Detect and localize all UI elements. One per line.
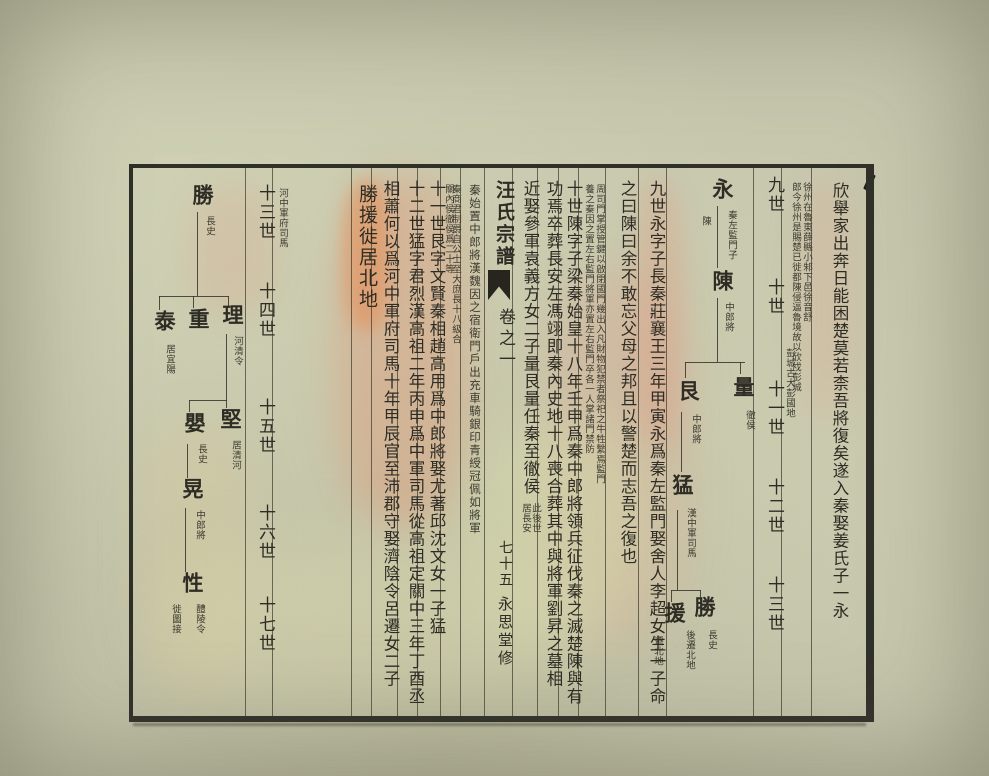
- tree-connector: [197, 212, 198, 296]
- generation-column-rule: [245, 168, 246, 716]
- publisher-hall: 永思堂修: [490, 596, 512, 668]
- text-column-gen9b: 之曰陳曰余不敢忘父母之邦且以警楚而志吾之復也: [613, 180, 635, 565]
- tree-name-ying: 嬰: [181, 412, 205, 433]
- fishtail-mark: [488, 270, 510, 300]
- tree-name-sheng: 勝: [691, 596, 715, 617]
- text-column-gen9: 九世永字子長秦莊襄王三年甲寅永爲秦左監門娶舍人李超女生一子命: [642, 180, 664, 705]
- text-column-gen12: 十二世猛字君烈漢高祖二年丙申爲中軍司馬從高祖定關中三年丁酉丞: [401, 180, 423, 705]
- tree-note-tai: 居宜陽: [163, 344, 174, 374]
- tree-note-yong-l: 陳: [699, 216, 710, 226]
- tree-name-jian: 堅: [217, 408, 241, 429]
- note-sima: 河中軍府司馬: [275, 188, 287, 248]
- tree-note-sheng-l: 後遷北地: [683, 630, 694, 670]
- column-rule: [753, 168, 754, 716]
- tree-note-huang: 中郎將: [193, 510, 204, 540]
- tree-connector: [189, 400, 190, 412]
- text-column-highlighted: 勝援徙居北地: [354, 184, 376, 310]
- tree-bracket: [685, 362, 745, 363]
- tree-note-li: 河清令: [231, 336, 242, 366]
- text-column-gen11: 十一世艮字文賢秦相趙高用爲中郎將娶尤著邱沈文女一子猛: [422, 180, 444, 635]
- note-residence-2: 居長安: [518, 503, 530, 533]
- note-zhonglangjiang: 秦始置中郎將漢魏因之宿衛門戶出充車騎銀印青綬冠佩如將軍: [465, 184, 480, 535]
- tree-note-liang: 徹侯: [743, 410, 754, 430]
- generation-label-13b: 十三世: [249, 184, 273, 241]
- tree-connector: [681, 412, 682, 472]
- tree-connector: [159, 296, 160, 310]
- tree-connector: [717, 298, 718, 362]
- tree-connector: [226, 400, 227, 408]
- tree-connector: [193, 296, 194, 308]
- tree-name-gen: 艮: [675, 380, 699, 401]
- tree-note-xing-l: 徙圖接: [169, 604, 180, 634]
- tree-connector: [226, 334, 227, 400]
- tree-note-chen: 中郎將: [722, 302, 733, 332]
- tree-connector: [717, 206, 718, 268]
- book-page-frame: 欣舉家出奔日能困楚莫若柰吾將復矣遂入秦娶姜氏子一永 徐州在魯東薛縣小邾下邑徐音舒…: [129, 164, 874, 722]
- tree-connector: [740, 362, 741, 374]
- tree-name-liang: 量: [730, 376, 754, 397]
- column-rule: [638, 168, 639, 716]
- tree-connector: [187, 444, 188, 478]
- tree-name-tai: 泰: [151, 310, 175, 331]
- column-rule: [666, 168, 667, 716]
- scanned-book-photo: { "book": { "title": "汪氏宗譜", "volume": "…: [0, 0, 989, 776]
- text-column-gen12b: 相蕭何以爲河中軍府司馬十年甲辰官至沛郡守娶濟陰令呂遷女二子: [376, 180, 398, 688]
- tree-name-huang: 晃: [179, 478, 203, 499]
- tree-note-sheng2: 長史: [203, 216, 214, 236]
- tree-bracket: [189, 400, 227, 401]
- tree-note-ying: 長史: [195, 444, 206, 464]
- generation-label-12: 十二世: [758, 478, 782, 535]
- tree-connector: [685, 362, 686, 378]
- tree-connector: [671, 590, 672, 602]
- tree-note-sheng-r: 長史: [705, 630, 716, 650]
- tree-note-jian: 居清河: [229, 440, 240, 470]
- generation-label-15: 十五世: [249, 398, 273, 455]
- tree-name-xing: 性: [179, 572, 203, 593]
- tree-note-gen: 中郎將: [689, 414, 700, 444]
- generation-label-11: 十一世: [758, 380, 782, 437]
- generation-label-10: 十世: [758, 278, 782, 316]
- generation-label-16: 十六世: [249, 504, 273, 561]
- tree-connector: [185, 508, 186, 572]
- text-column-gen10b: 功焉卒葬長安左馮翊即秦內史地十八喪合葬其中與將軍劉昇之墓相: [539, 180, 561, 688]
- spine-rule-left: [484, 168, 485, 716]
- tree-connector: [677, 510, 678, 590]
- generation-label-14: 十四世: [249, 282, 273, 339]
- column-rule: [351, 168, 352, 716]
- page-number: 七十五: [492, 540, 512, 588]
- tree-bracket: [671, 590, 701, 591]
- tree-note-meng: 漢中軍司馬: [684, 508, 695, 558]
- text-column-xin: 欣舉家出奔日能困楚莫若柰吾將復矣遂入秦娶姜氏子一永: [825, 182, 847, 620]
- tree-name-zhong: 重: [185, 308, 209, 329]
- column-rule: [781, 168, 782, 716]
- column-rule: [605, 168, 606, 716]
- tree-name-chen: 陳: [709, 270, 733, 291]
- text-column-gen10c: 近娶參軍袁義方女二子量艮量任秦至徹侯: [516, 180, 538, 495]
- tree-name-yong: 永: [709, 178, 733, 199]
- page-edge-shadow: [133, 723, 866, 726]
- volume-label: 卷之一: [489, 308, 513, 371]
- tree-bracket: [159, 296, 229, 297]
- generation-label-13: 十三世: [758, 576, 782, 633]
- tree-note-yong-r: 秦左監門子: [725, 210, 736, 260]
- tree-name-sheng2: 勝: [189, 184, 213, 205]
- generation-label-9: 九世: [758, 176, 782, 214]
- tree-name-li: 理: [219, 304, 243, 325]
- generation-label-17: 十七世: [249, 596, 273, 653]
- tree-note-xing-r: 醴陵令: [193, 604, 204, 634]
- tree-name-meng: 猛: [669, 474, 693, 495]
- book-title: 汪氏宗譜: [489, 180, 513, 268]
